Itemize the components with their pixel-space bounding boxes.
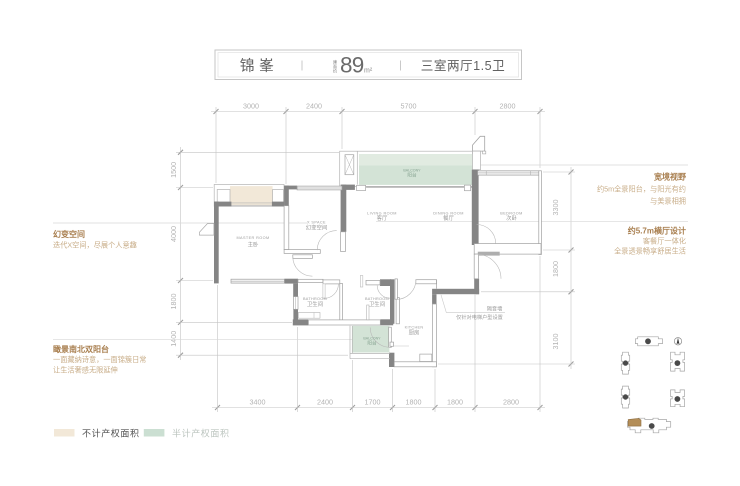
svg-text:BATHROOM: BATHROOM xyxy=(365,297,389,301)
svg-text:与美景相拥: 与美景相拥 xyxy=(650,197,686,206)
svg-text:全景透景畅享舒居生活: 全景透景畅享舒居生活 xyxy=(614,247,686,256)
svg-text:DINING ROOM: DINING ROOM xyxy=(433,211,464,215)
svg-text:BATHROOM: BATHROOM xyxy=(303,297,327,301)
svg-text:不计产权面积: 不计产权面积 xyxy=(82,428,140,439)
svg-text:隔音墙: 隔音墙 xyxy=(487,304,503,312)
svg-text:89: 89 xyxy=(340,53,364,78)
svg-text:KITCHEN: KITCHEN xyxy=(405,326,424,330)
svg-text:幻变空间: 幻变空间 xyxy=(53,229,85,239)
svg-text:1800: 1800 xyxy=(169,294,178,310)
svg-text:1800: 1800 xyxy=(406,398,422,407)
svg-text:LIVING ROOM: LIVING ROOM xyxy=(367,211,397,215)
svg-text:4000: 4000 xyxy=(169,226,178,242)
svg-text:2800: 2800 xyxy=(500,102,516,111)
svg-text:阳台: 阳台 xyxy=(407,172,417,179)
svg-text:m²: m² xyxy=(364,68,373,75)
svg-text:仅针对电梯户型设置: 仅针对电梯户型设置 xyxy=(456,313,503,321)
svg-text:迭代X空间，尽展个人意趣: 迭代X空间，尽展个人意趣 xyxy=(53,241,137,250)
svg-text:2800: 2800 xyxy=(503,398,519,407)
svg-text:餐厅: 餐厅 xyxy=(443,214,454,222)
svg-text:1700: 1700 xyxy=(365,398,381,407)
svg-text:约5.7m横厅设计: 约5.7m横厅设计 xyxy=(628,226,686,236)
svg-text:约5m全景阳台，与阳光有约: 约5m全景阳台，与阳光有约 xyxy=(597,185,686,194)
svg-text:瞰景南北双阳台: 瞰景南北双阳台 xyxy=(53,344,109,354)
svg-text:BEDROOM: BEDROOM xyxy=(500,211,522,215)
svg-text:卫生间: 卫生间 xyxy=(369,300,385,308)
svg-text:锦峯: 锦峯 xyxy=(240,58,279,75)
svg-text:宽境视野: 宽境视野 xyxy=(653,172,686,182)
svg-text:1500: 1500 xyxy=(169,162,178,178)
svg-text:3000: 3000 xyxy=(243,102,259,111)
svg-text:X SPACE: X SPACE xyxy=(307,221,326,225)
svg-text:约: 约 xyxy=(333,68,337,74)
svg-text:1400: 1400 xyxy=(169,331,178,347)
svg-text:客厅: 客厅 xyxy=(377,214,388,222)
svg-text:3400: 3400 xyxy=(250,398,266,407)
svg-text:次卧: 次卧 xyxy=(506,214,517,222)
svg-text:三室两厅1.5卫: 三室两厅1.5卫 xyxy=(421,58,505,73)
svg-text:2400: 2400 xyxy=(306,102,322,111)
svg-text:卫生间: 卫生间 xyxy=(307,300,323,308)
svg-text:客餐厅一体化: 客餐厅一体化 xyxy=(643,237,686,246)
svg-text:1800: 1800 xyxy=(551,261,560,277)
svg-text:幻变空间: 幻变空间 xyxy=(306,224,328,232)
svg-text:3100: 3100 xyxy=(551,334,560,350)
svg-text:一面藏纳诗意，一面锦簇日常: 一面藏纳诗意，一面锦簇日常 xyxy=(53,355,146,364)
svg-text:让生活奢感无限延伸: 让生活奢感无限延伸 xyxy=(53,366,118,375)
svg-text:主卧: 主卧 xyxy=(248,241,259,249)
svg-text:半计产权面积: 半计产权面积 xyxy=(172,428,230,439)
svg-text:3300: 3300 xyxy=(551,200,560,216)
svg-text:5700: 5700 xyxy=(401,102,417,111)
svg-text:MASTER ROOM: MASTER ROOM xyxy=(236,236,269,240)
svg-text:1800: 1800 xyxy=(447,398,463,407)
svg-text:阳台: 阳台 xyxy=(367,340,377,347)
svg-text:厨房: 厨房 xyxy=(409,329,420,337)
svg-text:2400: 2400 xyxy=(317,398,333,407)
